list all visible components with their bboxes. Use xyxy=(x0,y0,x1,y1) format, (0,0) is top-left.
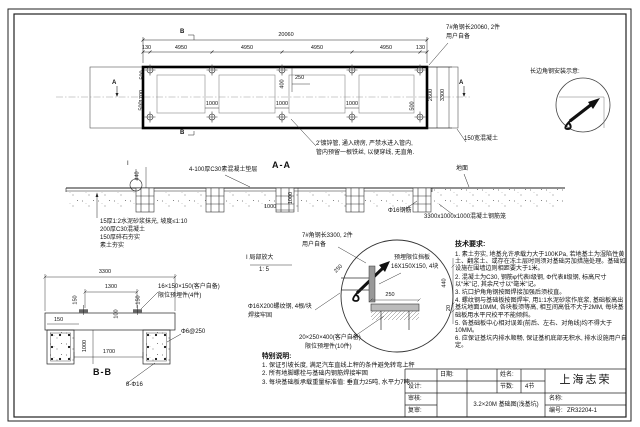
special-item: 3. 每块基础板承载重量标准值: 垂直力25吨, 水平力7吨 xyxy=(262,379,457,386)
title-block-sections-label: 节数: xyxy=(500,384,514,391)
dim-bb-1000: 1000 xyxy=(82,340,88,352)
note-angle-steel-short-2: 用户自备 xyxy=(302,242,326,249)
dim-plan-500-top: 500 xyxy=(140,70,146,79)
note-stop-plate: 预埋限位挡板 xyxy=(394,255,430,262)
dim-plan-total: 20060 xyxy=(256,32,316,38)
install-diagram-title: 长边角钢安装示意: xyxy=(530,69,580,76)
plan-linework xyxy=(56,35,470,146)
note-angle-steel-long: 7#角钢长20060, 2件 xyxy=(446,25,500,32)
dim-plan-seg-4950: 4950 xyxy=(375,45,397,51)
special-notes-list: 1. 保证引坡长度, 满足汽车直线上秤的条件避免转弯上秤 2. 所有地脚螺栓与基… xyxy=(262,362,457,387)
tech-item: 5. 各基础板中心相对误差(前后、左右、对角线)均不得大于10MM。 xyxy=(455,320,627,334)
layer-note-mortar: 15厚1:2水泥砂浆抹光, 坡度≤1:10 xyxy=(100,219,187,226)
dim-plan-500-bl: 500 xyxy=(139,101,145,110)
dim-aa-1000-v: 1000 xyxy=(288,192,294,204)
dim-plan-seg-4950: 4950 xyxy=(170,45,192,51)
title-block-title-label: 名称: xyxy=(549,396,563,403)
note-cushion: 4-100厚C30素混凝土垫层 xyxy=(189,167,257,174)
dim-bb-1700: 1700 xyxy=(96,349,122,355)
dim-plan-400: 400 xyxy=(280,79,286,88)
note-galvanized-pipe: 2'镀锌管, 通入磅房, 严禁水进入管内, xyxy=(316,141,413,148)
label-ground: 地面 xyxy=(456,166,468,173)
note-embed-plate-4: 16×150×150(客户自备) xyxy=(158,284,220,291)
title-block-drawing-name: 3.2×20M 基础图(浅基坑) xyxy=(463,402,549,409)
tech-item: 3. 坑口护角角钢按图焊接加强后须校直。 xyxy=(455,289,627,296)
section-mark-b-top: B xyxy=(180,29,184,36)
special-item: 2. 所有地脚螺栓与基础内钢筋焊接牢固 xyxy=(262,370,457,377)
detail-scale: 1: 5 xyxy=(259,267,269,274)
section-mark-a-left: A xyxy=(112,80,116,87)
dim-plan-2600: 2600 xyxy=(428,89,434,101)
dim-plan-seg-4950: 4950 xyxy=(306,45,328,51)
tech-requirements-title: 技术要求: xyxy=(455,241,485,249)
title-block-sections-value: 4节 xyxy=(525,384,534,391)
drawing-sheet: 20060 130 4950 4950 4950 4950 130 B B A … xyxy=(0,0,640,427)
dim-aa-440: 440 xyxy=(135,171,141,180)
title-block-date-label: 日期: xyxy=(440,372,454,379)
dim-plan-3300: 3300 xyxy=(440,89,446,101)
note-galvanized-pipe-2: 管内预留一根铁丝, 以便穿线, 无直角. xyxy=(316,150,414,157)
note-angle-steel-short: 7#角钢长3300, 2件 xyxy=(302,233,353,240)
dim-plan-500-br: 500 xyxy=(410,101,416,110)
dim-plan-1700: 1700 xyxy=(139,90,145,102)
dim-plan-seg-130-left: 130 xyxy=(139,45,154,51)
dim-plan-1000: 1000 xyxy=(200,101,224,107)
label-rebar-d16: Φ16钢筋 xyxy=(388,208,411,215)
title-block-no-label: 编号: xyxy=(549,408,563,415)
note-angle-steel-long-2: 用户自备 xyxy=(446,34,470,41)
layer-note-c30: 200厚C30混凝土 xyxy=(100,227,145,234)
detail-flag-i: I xyxy=(127,161,129,168)
install-diagram-linework xyxy=(556,78,610,132)
dim-plan-seg-130-right: 130 xyxy=(413,45,428,51)
dim-plan-250: 250 xyxy=(295,75,304,81)
title-block-design-label: 设计: xyxy=(408,384,422,391)
note-threaded-rebar-2: 焊接牢固 xyxy=(248,313,272,320)
note-embed-plate-10-2: 限位预埋件(10件) xyxy=(305,344,352,351)
dim-detail-250-plate: 250 xyxy=(380,292,400,298)
dim-plan-seg-4950: 4950 xyxy=(236,45,258,51)
tech-item: 2. 混凝土为C30, 钢筋φ代表Ⅰ级钢, Φ代表Ⅱ级钢, 标高尺寸以“米”记,… xyxy=(455,274,627,288)
note-stop-plate-2: 16X150X150, 4块 xyxy=(391,264,438,271)
dim-bb-150-right: 150 xyxy=(136,295,142,304)
dim-bb-1300: 1300 xyxy=(96,284,126,290)
dim-detail-20: 20 xyxy=(446,305,452,311)
dim-detail-440: 440 xyxy=(442,278,448,287)
dim-bb-150-edge: 150 xyxy=(54,317,63,323)
tech-item: 4. 螺纹钢与基础板按图焊牢, 用1:1水泥砂浆作底浆, 基础板高出基坑地面10… xyxy=(455,297,627,319)
label-stirrup: Φ6@250 xyxy=(181,329,205,336)
dim-plan-1000: 1000 xyxy=(340,101,364,107)
title-block-no-value: ZR32204-1 xyxy=(567,408,597,415)
title-block-name-label: 姓名: xyxy=(500,372,514,379)
section-aa-label: A-A xyxy=(272,161,291,171)
dim-bb-3300: 3300 xyxy=(90,269,120,275)
label-rebar-cage: 3300x1000x1000混凝土钢筋笼 xyxy=(424,214,506,221)
special-item: 1. 保证引坡长度, 满足汽车直线上秤的条件避免转弯上秤 xyxy=(262,362,457,369)
note-concrete-edge: 150宽混凝土 xyxy=(464,136,498,143)
dim-bb-150-left: 150 xyxy=(73,295,79,304)
title-block-check-label: 审核: xyxy=(408,396,422,403)
title-block-company: 上海志荣 xyxy=(546,374,625,386)
tech-item: 1. 素土夯实, 地基允许承载力大于100KPa, 若地基土为湿陷性黄土、翻浆土… xyxy=(455,251,627,273)
layer-note-gravel: 150厚碎石夯实 xyxy=(100,235,140,242)
section-aa-linework xyxy=(66,167,565,218)
special-notes-title: 特别说明: xyxy=(262,353,291,360)
note-embed-plate-4-2: 限位预埋件(4件) xyxy=(158,293,201,300)
title-block-recheck-label: 复审: xyxy=(408,408,422,415)
section-bb-label: B-B xyxy=(93,368,112,378)
note-threaded-rebar: Φ16X200螺纹钢, 4根/块 xyxy=(248,304,312,311)
section-mark-a-right: A xyxy=(459,80,463,87)
note-embed-plate-10: 20×250×400(客户自备) xyxy=(299,335,361,342)
layer-note-soil: 素土夯实 xyxy=(100,243,124,250)
detail-title: I 局部放大 xyxy=(246,255,273,262)
tech-requirements-list: 1. 素土夯实, 地基允许承载力大于100KPa, 若地基土为湿陷性黄土、翻浆土… xyxy=(455,251,627,350)
dim-aa-1000-h: 1000 xyxy=(264,204,276,210)
tech-item: 6. 应保证基坑内排水顺畅, 保证基机底部无积水, 排水设施用户自定。 xyxy=(455,335,627,349)
dim-plan-1000: 1000 xyxy=(270,101,294,107)
label-main-rebar: 8-Φ16 xyxy=(126,382,143,389)
dim-bb-100: 100 xyxy=(114,309,120,318)
section-mark-b-bottom: B xyxy=(180,130,184,137)
